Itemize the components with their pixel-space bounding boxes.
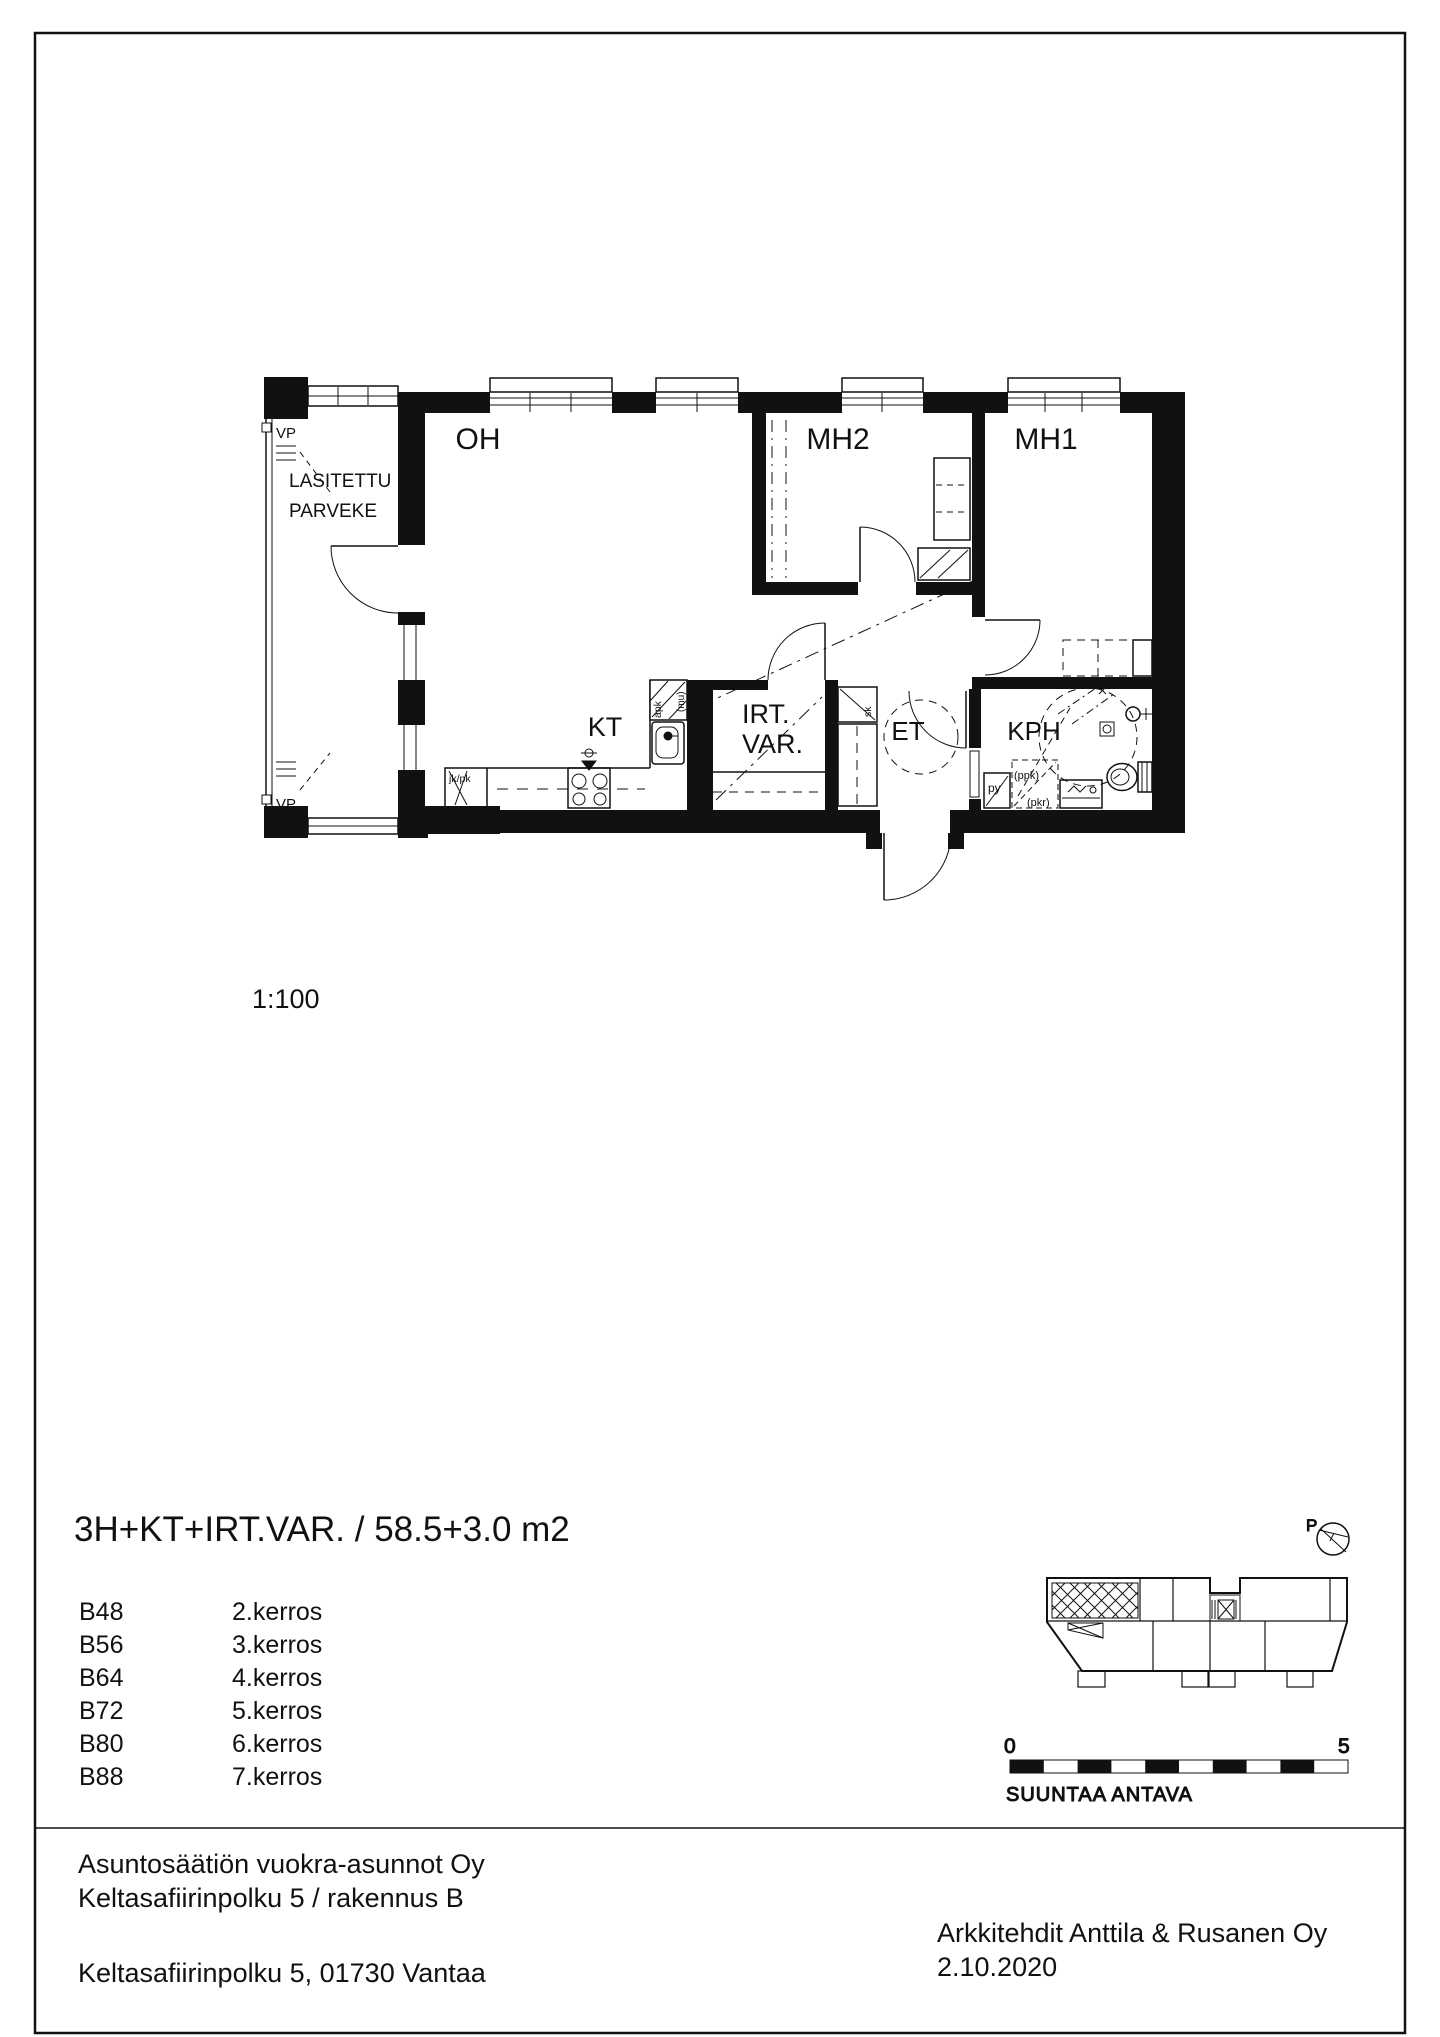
project-name: Keltasafiirinpolku 5 / rakennus B: [78, 1883, 464, 1914]
window-balcony-wall-upper: [404, 625, 416, 680]
label-kitchen: KT: [588, 712, 623, 742]
kph-sliding-door: [970, 751, 979, 797]
floor-drain: [1100, 722, 1114, 736]
mh2-wardrobe-track: [772, 420, 786, 578]
unit-id: B88: [79, 1763, 123, 1792]
drawing-canvas: OH MH2 MH1 KT IRT. VAR. ET KPH LASITETTU…: [0, 0, 1440, 2037]
wall-mh2-left: [752, 413, 766, 595]
stair-core: [1210, 1595, 1240, 1621]
label-microwave: (mu): [676, 691, 687, 712]
et-closet-sk: [838, 687, 877, 806]
stove: [568, 768, 610, 808]
balcony-corner-block-top: [264, 377, 308, 419]
wall-irtvar-top: [687, 680, 768, 690]
laundry-tub: [1060, 780, 1102, 808]
unit-highlight-hatch: [1052, 1583, 1138, 1618]
wall-mh2-bottom-left: [752, 582, 858, 595]
label-balcony-1: LASITETTU: [289, 471, 391, 492]
label-closet-sk: sk: [862, 706, 874, 717]
unit-floor: 6.kerros: [232, 1730, 322, 1759]
unit-floor: 7.kerros: [232, 1763, 322, 1792]
wall-kph-top: [972, 677, 1152, 689]
label-storage-1: IRT.: [742, 699, 790, 729]
label-bathroom: KPH: [1007, 716, 1060, 746]
label-storage-2: VAR.: [742, 729, 803, 759]
scale-bar-zero: 0: [1004, 1735, 1016, 1758]
east-wall: [1152, 392, 1185, 833]
apartment-title: 3H+KT+IRT.VAR. / 58.5+3.0 m2: [74, 1510, 570, 1550]
label-dryer: (pkr): [1027, 797, 1050, 809]
wall-et-kph-lower: [969, 799, 981, 810]
entry-door: [884, 833, 951, 900]
vent-panel-hatch-bottom: [276, 762, 296, 776]
wall-kt-irtvar: [687, 680, 713, 810]
window-mh2: [842, 378, 923, 412]
label-washer: (ppk): [1014, 770, 1039, 782]
north-label: P: [1306, 1516, 1317, 1535]
mh2-door: [860, 527, 915, 582]
unit-floor: 2.kerros: [232, 1598, 322, 1627]
mh2-corner-cabinet: [918, 548, 970, 580]
entry-jamb-left: [866, 833, 882, 849]
label-laundry-cabinet: py: [988, 781, 1001, 795]
north-arrow: P: [1306, 1516, 1349, 1555]
scale-bar-five: 5: [1338, 1735, 1350, 1758]
unit-id: B48: [79, 1598, 123, 1627]
label-bedroom-1: MH1: [1014, 423, 1077, 456]
drawing-date: 2.10.2020: [937, 1952, 1057, 1983]
window-oh-1: [490, 378, 612, 412]
mh1-cabinet: [1133, 640, 1152, 676]
scale-bar: 0 5 SUUNTAA ANTAVA: [1004, 1735, 1350, 1806]
entrance-marker: [1068, 1623, 1103, 1638]
label-vp-top: VP: [276, 425, 296, 442]
wall-mh1-left: [972, 413, 985, 617]
location-key-plan: P: [1004, 1516, 1350, 1806]
bathroom-fixtures: [884, 687, 1152, 808]
washbasin: [1126, 707, 1152, 721]
window-oh-2: [656, 378, 738, 412]
label-entry: ET: [891, 716, 924, 746]
balcony-stubs: [1078, 1671, 1313, 1687]
wall-irtvar-right: [825, 680, 838, 810]
label-bedroom-2: MH2: [806, 423, 869, 456]
project-address: Keltasafiirinpolku 5, 01730 Vantaa: [78, 1958, 486, 1989]
cooker-hood-symbol: [581, 749, 597, 770]
architect-name: Arkkitehdit Anttila & Rusanen Oy: [937, 1918, 1327, 1949]
balcony-top-glazing: [308, 386, 398, 406]
label-dishwasher: apk: [652, 700, 664, 718]
label-living-room: OH: [456, 423, 501, 456]
balcony-door: [331, 546, 398, 613]
balcony-side-glazing: [266, 419, 272, 806]
unit-id: B72: [79, 1697, 123, 1726]
label-fridge: jk/pk: [448, 773, 471, 785]
balcony-bottom-glazing: [308, 818, 398, 834]
balcony: [262, 377, 398, 838]
plan-scale-label: 1:100: [252, 984, 320, 1015]
window-mh1: [1008, 378, 1120, 412]
unit-id: B56: [79, 1631, 123, 1660]
window-balcony-wall-lower: [404, 725, 416, 770]
label-vp-bottom: VP: [276, 796, 296, 813]
unit-floor: 3.kerros: [232, 1631, 322, 1660]
wall-mh2-bottom-right: [916, 582, 972, 595]
vent-symbol-bottom: [262, 795, 271, 804]
mh1-door: [985, 620, 1040, 675]
unit-id: B80: [79, 1730, 123, 1759]
label-balcony-2: PARVEKE: [289, 501, 377, 522]
vent-panel-hatch-top: [276, 446, 296, 460]
mh2-shelf-cabinet: [934, 458, 970, 540]
unit-floor: 4.kerros: [232, 1664, 322, 1693]
owner-company: Asuntosäätiön vuokra-asunnot Oy: [78, 1849, 485, 1880]
scale-bar-note: SUUNTAA ANTAVA: [1006, 1784, 1193, 1806]
toilet: [1107, 762, 1152, 792]
vent-symbol-top: [262, 423, 271, 432]
unit-id: B64: [79, 1664, 123, 1693]
floor-plan: OH MH2 MH1 KT IRT. VAR. ET KPH LASITETTU…: [262, 377, 1185, 900]
building-outline: [1047, 1578, 1347, 1687]
unit-floor: 5.kerros: [232, 1697, 322, 1726]
irtvar-door: [768, 623, 825, 680]
kitchen-fixtures: [445, 680, 687, 808]
drawing-sheet: OH MH2 MH1 KT IRT. VAR. ET KPH LASITETTU…: [0, 0, 1440, 2037]
mh1-wardrobe-reserved: [1063, 640, 1133, 676]
wall-et-kph-upper: [969, 689, 981, 748]
